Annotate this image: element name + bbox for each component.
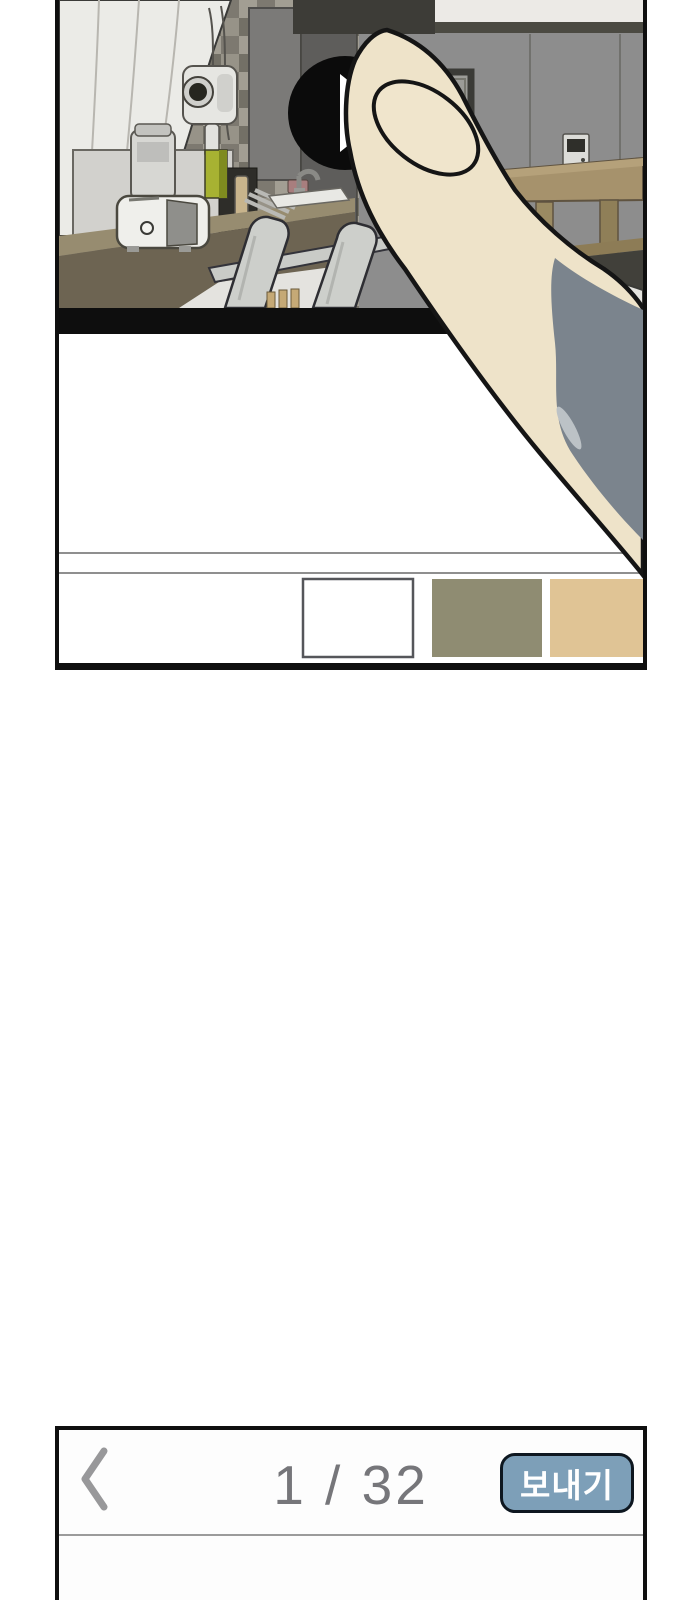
wood-slats (267, 289, 299, 308)
color-swatch-white[interactable] (303, 579, 413, 657)
page: 1 / 32 보내기 (0, 0, 690, 1600)
wall-heater (563, 134, 589, 166)
comic-panel-art (59, 0, 643, 663)
color-swatch-tan[interactable] (550, 579, 643, 657)
upper-cabinet (435, 0, 643, 22)
cabinet-trim (435, 22, 643, 33)
comic-panel (55, 0, 647, 670)
color-swatch-olive[interactable] (432, 579, 542, 657)
water-pitcher (131, 124, 175, 200)
pager-bar-divider (59, 1534, 643, 1536)
pager-bar-row: 1 / 32 보내기 (59, 1430, 643, 1534)
toaster (117, 196, 209, 252)
send-button[interactable]: 보내기 (500, 1453, 634, 1513)
dark-beam (293, 0, 435, 34)
pager-bar: 1 / 32 보내기 (55, 1426, 647, 1600)
green-bottle-shade (219, 150, 227, 198)
